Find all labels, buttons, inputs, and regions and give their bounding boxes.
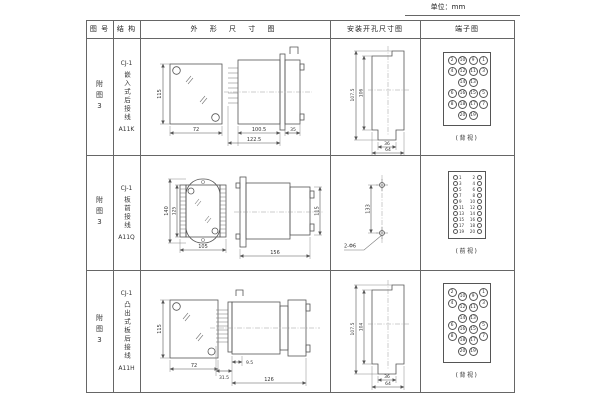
terminal-box: 2109141211314136161558181772019 — [443, 52, 491, 126]
header-structure: 结 构 — [113, 20, 140, 38]
terminal-pin — [477, 217, 482, 222]
dim-label: 36 — [384, 374, 390, 380]
dim-label: 122.5 — [247, 137, 261, 143]
terminal-pin: 14 — [458, 78, 467, 87]
dim-label: 72 — [193, 127, 199, 133]
grid-line — [86, 392, 515, 393]
figure-label: 附图3 — [95, 314, 105, 348]
terminal-pin — [477, 223, 482, 228]
terminal-pin: 11 — [469, 67, 478, 76]
terminal-pin — [477, 181, 482, 186]
dim-label: 106 — [359, 89, 365, 98]
dim-label: 9.5 — [246, 360, 253, 366]
dim-label: 115 — [315, 206, 321, 216]
dim-label: 31.5 — [219, 375, 229, 381]
terminal-pin: 8 — [448, 332, 457, 341]
terminal-pin: 13 — [469, 78, 478, 87]
terminal-pin: 20 — [458, 347, 467, 356]
terminal-pin: 13 — [469, 314, 478, 323]
terminal-pin — [453, 193, 458, 198]
terminal-pin: 12 — [458, 67, 467, 76]
terminal-pin: 12 — [458, 303, 467, 312]
unit-underline — [405, 15, 520, 16]
terminal-pin: 6 — [448, 89, 457, 98]
terminal-pin: 15 — [469, 325, 478, 334]
unit-label: 单位：mm — [408, 2, 488, 12]
terminal-pin: 17 — [469, 336, 478, 345]
structure-code: A11K — [119, 126, 135, 133]
terminal-pin: 18 — [458, 336, 467, 345]
terminal-pin: 15 — [469, 89, 478, 98]
terminal-pin — [477, 193, 482, 198]
structure-model: CJ-1 — [121, 60, 133, 67]
structure-name: 嵌入式后接线 — [122, 71, 132, 122]
terminal-pin — [453, 205, 458, 210]
terminal-pin: 10 — [458, 292, 467, 301]
terminal-pin: 9 — [469, 56, 478, 65]
dimension-table: 图 号 结 构 外 形 尺 寸 图 安装开孔尺寸图 端子图 附图3 CJ-1 嵌… — [86, 20, 515, 393]
terminal-pin: 18 — [458, 100, 467, 109]
terminal-pin: 6 — [448, 321, 457, 330]
terminal-pin: 4 — [448, 67, 457, 76]
terminal-pin — [453, 223, 458, 228]
dim-label: 115 — [157, 324, 163, 334]
hole-note-label: 2-Φ6 — [344, 244, 356, 250]
dim-label: 72 — [191, 363, 197, 369]
figure-label: 附图3 — [95, 80, 105, 114]
dim-label: 35 — [290, 127, 296, 133]
dim-label: 126 — [264, 377, 274, 383]
dim-label: 104 — [359, 323, 365, 332]
terminal-pin: 7 — [479, 100, 488, 109]
dim-label: 156 — [270, 250, 280, 256]
structure-cell-row2: CJ-1 板前接线 A11Q — [113, 155, 140, 270]
terminal-pin — [453, 211, 458, 216]
terminal-pin: 14 — [458, 314, 467, 323]
terminal-pin: 5 — [479, 89, 488, 98]
dim-label: 100.5 — [252, 127, 266, 133]
terminal-caption: (背视) — [456, 370, 479, 379]
structure-cell-row1: CJ-1 嵌入式后接线 A11K — [113, 38, 140, 155]
terminal-pin: 17 — [469, 100, 478, 109]
grid-line — [514, 20, 515, 393]
figure-cell-row3: 附图3 — [86, 270, 113, 392]
terminal-pin — [453, 229, 458, 234]
terminal-pin — [477, 187, 482, 192]
terminal-pin — [453, 181, 458, 186]
figure-label: 附图3 — [95, 196, 105, 230]
terminal-pin: 16 — [458, 325, 467, 334]
figure-cell-row2: 附图3 — [86, 155, 113, 270]
document-page: 单位：mm 图 号 结 构 外 形 尺 寸 图 安装开孔尺寸图 端子图 附图3 … — [0, 0, 600, 400]
terminal-caption: (背视) — [456, 133, 479, 142]
dim-label: 36 — [384, 141, 390, 147]
terminal-pin — [453, 175, 458, 180]
dim-label: 140 — [164, 206, 170, 216]
terminal-diagram-row2: 1234567891011121314151617181920(前视) — [420, 155, 514, 270]
install-diagram-row2: 133 2-Φ6 — [330, 155, 420, 270]
terminal-pin: 19 — [469, 111, 478, 120]
structure-code: A11Q — [118, 234, 134, 241]
dim-label: 107.5 — [350, 322, 356, 335]
dim-label: 64 — [385, 147, 391, 153]
terminal-diagram-row3: 2109141211314136161558181772019(背视) — [420, 270, 514, 392]
terminal-pin: 16 — [458, 89, 467, 98]
terminal-box: 2109141211314136161558181772019 — [443, 283, 491, 363]
structure-cell-row3: CJ-1 凸出式板后接线 A11H — [113, 270, 140, 392]
structure-model: CJ-1 — [121, 185, 133, 192]
terminal-pin: 5 — [479, 321, 488, 330]
terminal-pin: 1 — [479, 288, 488, 297]
dim-label: 107.5 — [350, 88, 356, 101]
outline-diagram-row1: 115 72 100.5 122.5 35 — [140, 38, 330, 155]
dim-label: 64 — [385, 381, 391, 387]
dim-label: 133 — [366, 204, 372, 214]
outline-diagram-row3: 115 72 9.5 31.5 126 — [140, 270, 330, 392]
structure-name: 板前接线 — [122, 196, 132, 230]
install-diagram-row3: 107.5 104 36 64 — [330, 270, 420, 392]
structure-code: A11H — [118, 365, 134, 372]
terminal-pin — [477, 199, 482, 204]
terminal-pin: 3 — [479, 67, 488, 76]
header-outline: 外 形 尺 寸 图 — [140, 20, 330, 38]
terminal-pin: 10 — [458, 56, 467, 65]
terminal-diagram-row1: 2109141211314136161558181772019(背视) — [420, 38, 514, 155]
terminal-box: 1234567891011121314151617181920 — [448, 171, 486, 239]
terminal-pin: 20 — [458, 111, 467, 120]
terminal-pin: 11 — [469, 303, 478, 312]
terminal-pin — [477, 229, 482, 234]
terminal-pin: 4 — [448, 299, 457, 308]
dim-label: 115 — [157, 89, 163, 99]
outline-diagram-row2: 140 125 105 156 115 — [140, 155, 330, 270]
terminal-pin — [477, 205, 482, 210]
terminal-pin: 7 — [479, 332, 488, 341]
terminal-pin: 2 — [448, 56, 457, 65]
terminal-pin — [477, 211, 482, 216]
terminal-number: 19 — [459, 229, 467, 235]
terminal-pin — [453, 199, 458, 204]
install-diagram-row1: 107.5 106 36 64 — [330, 38, 420, 155]
terminal-pin: 9 — [469, 292, 478, 301]
terminal-pin: 19 — [469, 347, 478, 356]
terminal-pin: 1 — [479, 56, 488, 65]
dim-label: 125 — [172, 207, 178, 216]
terminal-pin — [453, 187, 458, 192]
structure-name: 凸出式板后接线 — [122, 301, 132, 361]
header-figure: 图 号 — [86, 20, 113, 38]
structure-model: CJ-1 — [121, 290, 133, 297]
dim-label: 105 — [198, 244, 208, 250]
terminal-pin: 3 — [479, 299, 488, 308]
terminal-pin — [453, 217, 458, 222]
figure-cell-row1: 附图3 — [86, 38, 113, 155]
terminal-pin: 2 — [448, 288, 457, 297]
terminal-number: 20 — [467, 229, 475, 235]
header-terminal: 端子图 — [420, 20, 514, 38]
terminal-pin: 8 — [448, 100, 457, 109]
terminal-caption: (前视) — [456, 246, 479, 255]
header-install: 安装开孔尺寸图 — [330, 20, 420, 38]
terminal-pin — [477, 175, 482, 180]
